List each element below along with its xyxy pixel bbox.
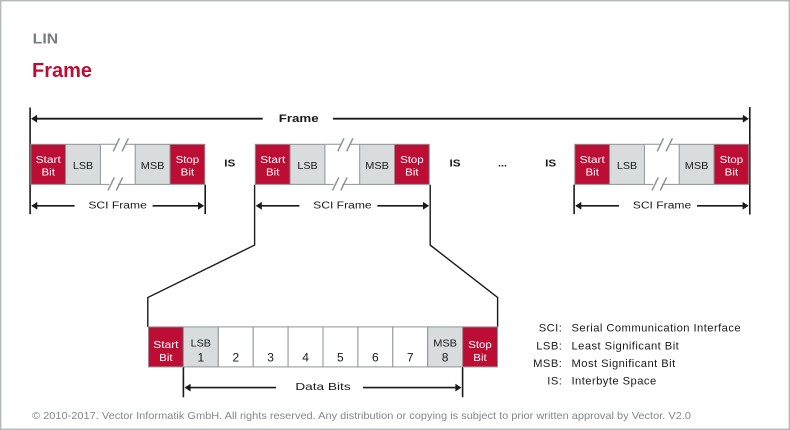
- svg-text:IS: IS: [545, 158, 556, 170]
- svg-text:Data Bits: Data Bits: [295, 382, 350, 393]
- svg-text:Most Significant Bit: Most Significant Bit: [572, 358, 677, 370]
- svg-text:Bit: Bit: [473, 353, 487, 364]
- svg-text:SCI Frame: SCI Frame: [633, 200, 692, 211]
- svg-text:1: 1: [197, 351, 204, 365]
- svg-text:SCI Frame: SCI Frame: [88, 200, 147, 211]
- svg-text:Stop: Stop: [400, 155, 424, 166]
- svg-text:IS: IS: [450, 158, 461, 170]
- svg-text:LIN: LIN: [33, 32, 58, 48]
- svg-text:LSB:: LSB:: [536, 340, 562, 352]
- svg-text:MSB: MSB: [365, 161, 389, 172]
- svg-text:Bit: Bit: [586, 168, 600, 179]
- svg-text:4: 4: [302, 351, 309, 365]
- svg-text:Start: Start: [260, 155, 286, 166]
- svg-text:Frame: Frame: [279, 113, 319, 125]
- svg-text:3: 3: [267, 351, 274, 365]
- svg-text:Start: Start: [36, 155, 62, 166]
- svg-text:Least Significant Bit: Least Significant Bit: [572, 340, 680, 352]
- svg-text:Bit: Bit: [405, 168, 419, 179]
- svg-text:Serial Communication Interface: Serial Communication Interface: [572, 323, 742, 335]
- svg-text:MSB: MSB: [685, 161, 709, 172]
- svg-text:Frame: Frame: [32, 60, 92, 82]
- svg-text:LSB: LSB: [617, 161, 638, 172]
- svg-text:© 2010-2017. Vector Informatik: © 2010-2017. Vector Informatik GmbH. All…: [32, 411, 691, 422]
- svg-text:Start: Start: [153, 340, 179, 351]
- svg-text:IS: IS: [224, 158, 235, 170]
- svg-text:Stop: Stop: [468, 340, 492, 351]
- svg-text:MSB:: MSB:: [533, 358, 562, 370]
- svg-text:LSB: LSB: [191, 339, 212, 350]
- svg-text:Interbyte Space: Interbyte Space: [572, 376, 657, 388]
- svg-text:SCI Frame: SCI Frame: [313, 200, 372, 211]
- svg-text:Bit: Bit: [159, 353, 173, 364]
- svg-text:5: 5: [337, 351, 344, 365]
- svg-text:LSB: LSB: [297, 161, 318, 172]
- svg-text:2: 2: [232, 351, 239, 365]
- svg-text:6: 6: [372, 351, 379, 365]
- svg-text:IS:: IS:: [547, 376, 562, 388]
- svg-text:SCI:: SCI:: [539, 323, 563, 335]
- svg-text:8: 8: [442, 351, 449, 365]
- svg-text:MSB: MSB: [141, 161, 165, 172]
- svg-text:Stop: Stop: [176, 155, 200, 166]
- svg-text:Bit: Bit: [181, 168, 195, 179]
- svg-text:Stop: Stop: [720, 155, 744, 166]
- svg-text:...: ...: [498, 158, 507, 170]
- svg-text:LSB: LSB: [73, 161, 94, 172]
- svg-text:Bit: Bit: [266, 168, 280, 179]
- svg-text:MSB: MSB: [433, 339, 457, 350]
- svg-text:Start: Start: [580, 155, 606, 166]
- svg-text:Bit: Bit: [725, 168, 739, 179]
- svg-text:7: 7: [407, 351, 414, 365]
- svg-text:Bit: Bit: [42, 168, 56, 179]
